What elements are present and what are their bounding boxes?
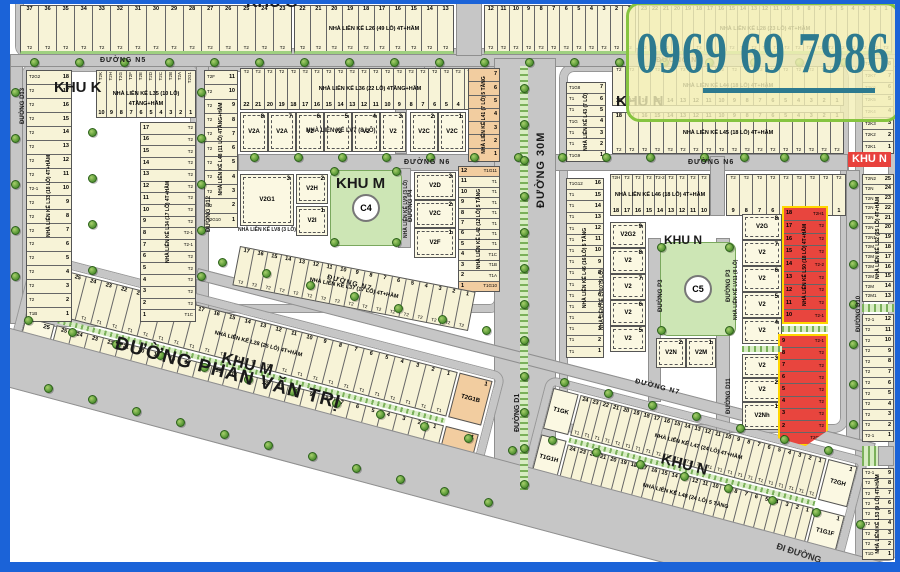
plot-number: 6 [232, 146, 235, 152]
plot-number: 16 [63, 103, 69, 109]
plot-cell: 10T2 [698, 175, 709, 215]
tree-icon [392, 167, 401, 176]
plot-code: T1 [204, 348, 210, 354]
plot-code: V2 [758, 328, 765, 334]
plot-cell: 5T2 [141, 262, 195, 274]
plot-code: T1 [798, 488, 804, 494]
plot-cell: 15T2 [322, 69, 334, 109]
plot-number: 14 [657, 209, 663, 215]
plot-number: 11 [290, 331, 297, 338]
plot-code: T2 [27, 46, 32, 51]
tree-icon [30, 58, 39, 67]
tree-icon [438, 315, 447, 324]
plot-number: 19 [347, 7, 353, 13]
plot-cell: 8T2 [534, 6, 547, 51]
plot-number: 13 [668, 209, 674, 215]
plot-cell: T2M113 [863, 291, 893, 301]
plot-number: 17 [786, 224, 792, 230]
plot-number: 7 [552, 7, 555, 13]
plot-code: T1 [569, 238, 574, 243]
tree-icon [849, 380, 858, 389]
plot-number: 12 [488, 7, 494, 13]
plot-code: V2H [306, 186, 318, 192]
plot-number: 8 [369, 273, 373, 279]
plot-number: 1 [449, 230, 452, 236]
plot-code: T2M [865, 255, 874, 260]
plot-number: 9 [143, 219, 146, 225]
plot-code: T2 [385, 70, 390, 75]
plot-number: 16 [786, 237, 792, 243]
plot-number: 22 [885, 206, 891, 212]
plot-code: T1C [488, 253, 497, 258]
plot-cell: T29 [863, 346, 893, 357]
tree-icon [440, 487, 449, 496]
strip-title: NHÀ LIÊN KẾ L41 (7 LÔ) 5 TẦNG [481, 76, 487, 154]
plot-code: T1 [604, 438, 610, 444]
plot-cell: 18T2 [358, 6, 374, 51]
tree-icon [394, 304, 403, 313]
plot-number: 1 [818, 459, 822, 465]
plot-code: T2 [29, 298, 34, 303]
villa-plot: 3V2D [414, 172, 456, 200]
plot-cell: 6T2 [559, 6, 572, 51]
plot-code: T2N [865, 197, 874, 202]
plot-cell: 18T2 [613, 113, 625, 153]
plot-number: 1 [232, 218, 235, 224]
road-30m-median [520, 66, 528, 490]
plot-code: T2 [616, 68, 621, 73]
plot-cell: T210 [863, 335, 893, 346]
plot-number: 12 [885, 317, 891, 323]
street-label-p3: ĐƯỜNG P3 [658, 280, 664, 312]
plot-number: 19 [279, 103, 285, 109]
plot-number: 2 [321, 176, 324, 182]
tree-icon [849, 220, 858, 229]
plot-code: T2 [616, 148, 621, 153]
plot-number: 33 [99, 7, 105, 13]
plot-number: 4 [373, 114, 376, 120]
plot-cell: T114 [567, 200, 603, 211]
plot-number: 1 [805, 508, 809, 514]
plot-cell: 9T2 [522, 6, 535, 51]
plot-cell: T27 [863, 367, 893, 378]
plot-code: T2 [819, 250, 824, 255]
plot-number: 13 [786, 275, 792, 281]
tree-icon [780, 153, 789, 162]
plot-number: 18 [786, 211, 792, 217]
plot-code: T2 [819, 351, 824, 356]
plot-cell: 7T2 [780, 359, 826, 371]
plot-code: T1 [281, 368, 287, 374]
plot-number: 5 [494, 99, 497, 105]
plot-number: 9 [736, 438, 740, 444]
plot-code: V2 [389, 129, 396, 135]
plot-cell: 9T2 [393, 69, 405, 109]
plot-code: T2 [29, 242, 34, 247]
plot-number: 3 [888, 121, 891, 127]
plot-code: T2 [320, 296, 326, 301]
tree-icon [548, 436, 557, 445]
plot-code: T2 [501, 46, 506, 51]
plot-code: T1 [492, 180, 497, 185]
plot-code: T2 [865, 339, 870, 344]
plot-number: 17 [302, 103, 308, 109]
plot-number: 15 [143, 149, 149, 155]
tree-icon [390, 58, 399, 67]
plot-cell: 1T2 [832, 175, 845, 215]
plot-code: T2-2 [815, 263, 824, 268]
plot-code: T2M [865, 265, 874, 270]
villa-plot: 6V2 [610, 300, 646, 326]
plot-number: 4 [386, 413, 390, 419]
plot-code: T2G1B [460, 394, 480, 405]
plot-code: T2 [363, 46, 368, 51]
villa-plot: 2V2 [742, 378, 782, 402]
plot-number: 17 [243, 249, 250, 256]
plot-number: 10 [98, 111, 104, 117]
plot-number: 8 [461, 211, 464, 217]
plot-number: 12 [786, 288, 792, 294]
strip-title-lv11: NHÀ LIÊN KẾ LV11 (8 LÔ) [734, 260, 739, 320]
plot-code: T2G1 [188, 72, 193, 83]
plot-cell: 11T1 [459, 176, 499, 186]
plot-cell: 5T2 [440, 69, 452, 109]
plot-number: 6 [754, 495, 758, 501]
plot-code: T2 [411, 46, 416, 51]
plot-cell: T13 [567, 323, 603, 334]
tree-icon [220, 430, 229, 439]
phone-underline [703, 88, 875, 93]
plot-number: 2 [679, 340, 682, 346]
plot-number: 12 [691, 479, 698, 486]
plot-code: T2 [629, 148, 634, 153]
plot-code: T2 [350, 70, 355, 75]
plot-number: 7 [353, 348, 357, 354]
tree-icon [592, 448, 601, 457]
plot-cell: 1T1C [141, 309, 195, 321]
plot-number: 4 [66, 270, 69, 276]
plot-number: 8 [261, 114, 264, 120]
plot-code: T2-1 [865, 318, 874, 323]
plot-number: 5 [410, 281, 414, 287]
plot-cell: T2F11 [205, 71, 237, 84]
plot-code: T1 [492, 201, 497, 206]
plot-code: T1 [492, 242, 497, 247]
plot-cell: 22T2 [241, 69, 252, 109]
street-label-30m: ĐƯỜNG 30M [536, 132, 547, 208]
plot-number: 4 [143, 278, 146, 284]
plot-cell: 2T2A [175, 71, 185, 117]
plot-cell: T24 [863, 399, 893, 410]
strip-title: NHÀ LIÊN KẾ L48 (11 LÔ) 4TẦNG+HẦM [218, 103, 224, 196]
plot-number: 14 [671, 473, 678, 480]
villa-plot: 5V2 [610, 326, 646, 352]
plot-cell: T12 [567, 335, 603, 346]
plot-code: T2 [757, 148, 762, 153]
plot-number: 5 [888, 391, 891, 397]
plot-code: T2 [770, 176, 775, 181]
plot-code: T2M [865, 275, 874, 280]
plot-number: 7 [639, 276, 642, 282]
plot-code: V2F [429, 240, 440, 246]
plot-code: T1 [569, 204, 574, 209]
plot-cell: 2T2 [610, 6, 623, 51]
plot-number: 5 [143, 266, 146, 272]
plot-number: 9 [398, 103, 401, 109]
plot-code: T1 [312, 376, 318, 382]
plot-code: T2E [139, 72, 144, 80]
plot-number: 16 [663, 419, 670, 426]
plot-number: 9 [639, 224, 642, 230]
plot-code: T2 [99, 46, 104, 51]
plot-number: 4 [888, 521, 891, 527]
plot-code: T2 [29, 89, 34, 94]
plot-number: 10 [461, 190, 467, 196]
plot-cell: 6T2 [428, 69, 440, 109]
plot-code: T1 [569, 316, 574, 321]
plot-code: T1G9 [569, 154, 580, 159]
plot-code: T2 [865, 392, 870, 397]
plot-number: 5 [345, 114, 348, 120]
plot-number: 10 [724, 435, 731, 442]
frame-bottom [0, 562, 900, 572]
plot-cell: 21T2 [310, 6, 326, 51]
tree-icon [820, 153, 829, 162]
plot-code: T2 [314, 70, 319, 75]
plot-number: 18 [885, 245, 891, 251]
tree-icon [520, 372, 529, 381]
plot-code: T2A [178, 72, 183, 80]
plot-cell: 28T2 [183, 6, 201, 51]
plot-number: 16 [635, 209, 641, 215]
plot-number: 11 [326, 265, 333, 272]
street-label-d10: ĐƯỜNG D10 [856, 296, 862, 332]
plot-code: T2 [655, 148, 660, 153]
plot-code: T2 [251, 283, 257, 288]
plot-code: T1 [594, 435, 600, 441]
tree-icon [482, 326, 491, 335]
plot-code: T2 [744, 176, 749, 181]
plot-number: 11 [690, 209, 696, 215]
plot-code: V2C [429, 211, 441, 217]
plot-number: 4 [775, 320, 778, 326]
plot-number: 15 [673, 421, 680, 428]
plot-cell: 33T2 [92, 6, 110, 51]
plot-cell: T28 [863, 356, 893, 367]
plot-cell: 13T2 [346, 69, 358, 109]
plot-code: T2 [403, 312, 409, 317]
strip-l34: 17T216T215T214T213T212T211T210T29T28T2-1… [140, 122, 196, 322]
plot-number: 4 [787, 451, 791, 457]
street-label-n6b: ĐƯỜNG N6 [688, 159, 734, 166]
tree-icon [11, 134, 20, 143]
plot-code: T1 [569, 338, 574, 343]
plot-number: 9 [527, 7, 530, 13]
tree-icon [11, 180, 20, 189]
tree-icon [484, 498, 493, 507]
plot-code: T2K1 [865, 145, 876, 150]
plot-number: 2 [807, 456, 811, 462]
plot-code: T2 [642, 148, 647, 153]
plot-number: 3 [232, 189, 235, 195]
plot-code: T2 [797, 176, 802, 181]
plot-number: 1 [837, 209, 840, 215]
tree-icon [255, 58, 264, 67]
tree-icon [520, 444, 529, 453]
plot-number: 22 [299, 7, 305, 13]
plot-number: 14 [595, 204, 601, 210]
plot-code: T2 [865, 532, 870, 537]
plot-code: T1 [96, 320, 102, 326]
plot-code: T2 [208, 46, 213, 51]
plot-cell: 11T2 [497, 6, 510, 51]
plot-number: 10 [229, 89, 235, 95]
plot-cell: T23 [27, 279, 71, 293]
tree-icon [615, 58, 624, 67]
plot-number: 4 [782, 399, 785, 405]
plot-number: 10 [513, 7, 519, 13]
plot-number: 12 [63, 158, 69, 164]
plot-code: T2 [865, 402, 870, 407]
plot-number: 1 [66, 312, 69, 318]
plot-number: 1 [848, 467, 853, 474]
villa-plot: 3V2 [742, 354, 782, 378]
plot-code: T2 [81, 46, 86, 51]
plot-cell: 17T2 [374, 6, 390, 51]
plot-code: T2N [865, 206, 874, 211]
tree-icon [768, 496, 777, 505]
strip-l26-b: 22T221T220T219T218T217T216T215T214T213T2… [294, 5, 454, 54]
strip-title-lv7: NHÀ LIÊN KẾ LV7 (8 LÔ) [306, 128, 376, 134]
plot-code: T2 [307, 293, 313, 298]
plot-number: 14 [284, 257, 291, 264]
plot-cell: T210 [205, 84, 237, 98]
plot-code: T2 [29, 173, 34, 178]
plot-code: T2N [865, 216, 874, 221]
plot-number: 1 [836, 516, 841, 523]
plot-code: T1 [492, 222, 497, 227]
plot-cell: T25 [27, 251, 71, 265]
plot-code: T2 [189, 46, 194, 51]
plot-code: T2 [117, 46, 122, 51]
plot-cell: T2N225 [863, 175, 893, 184]
plot-code: T1 [717, 467, 723, 473]
plot-number: 6 [600, 97, 603, 103]
plot-number: 1 [888, 433, 891, 439]
plot-number: 6 [639, 302, 642, 308]
plot-number: 14 [427, 7, 433, 13]
street-label-d11: ĐƯỜNG D11 [726, 378, 732, 414]
plot-number: 4 [424, 284, 428, 290]
plot-code: T2 [783, 176, 788, 181]
plot-code: T2 [427, 46, 432, 51]
plot-code: T1 [569, 271, 574, 276]
strip-title: NHÀ LIÊN KẾ L42 (12 LÔ) 5 TẦNG [476, 189, 482, 269]
plot-number: 9 [322, 340, 326, 346]
plot-cell: 37T2 [21, 6, 38, 51]
plot-code: T2-2 [655, 176, 664, 181]
tree-icon [849, 260, 858, 269]
plot-number: 17 [197, 307, 204, 314]
tree-icon [300, 58, 309, 67]
plot-code: T2 [256, 70, 261, 75]
roundabout-label: C4 [360, 203, 372, 213]
plot-number: 1 [888, 552, 891, 558]
plot-number: 19 [620, 460, 627, 467]
villa-plot: 8V2 [610, 248, 646, 274]
plot-code: T2 [338, 70, 343, 75]
plot-cell: 4T2 [585, 6, 598, 51]
plot-number: 24 [885, 186, 891, 192]
plot-number: 20 [885, 225, 891, 231]
plot-number: 16 [595, 181, 601, 187]
plot-cell: 8T2 [739, 175, 752, 215]
plot-code: T2M [865, 245, 874, 250]
plot-code: T2K2 [865, 133, 876, 138]
plot-number: 10 [63, 186, 69, 192]
plot-code: T1 [645, 449, 651, 455]
plot-cell: 30T2 [146, 6, 164, 51]
plot-cell: T1G91 [567, 150, 605, 161]
plot-number: 25 [60, 328, 67, 335]
plot-code: T2 [188, 302, 193, 307]
plot-code: T2 [188, 138, 193, 143]
plot-number: 10 [306, 335, 313, 342]
villa-plot: 1V2Nh [742, 402, 782, 430]
plot-number: 14 [885, 284, 891, 290]
plot-number: 2 [775, 380, 778, 386]
plot-number: 2 [782, 424, 785, 430]
plot-code: T2 [693, 148, 698, 153]
street-label-d1: ĐƯỜNG D1 [514, 394, 521, 432]
plot-cell: 14T2 [421, 6, 437, 51]
strip-l41: 7654321NHÀ LIÊN KẾ L41 (7 LÔ) 5 TẦNG [468, 68, 500, 162]
plot-code: V2A [276, 129, 288, 135]
strip-l35: 10T2K9T2H8T2G7T2F6T2E5T2D4T2C3T2B2T2A1T2… [96, 70, 196, 118]
plot-code: T2 [819, 237, 824, 242]
tree-icon [197, 88, 206, 97]
plot-code: T1G12 [569, 182, 583, 187]
plot-cell: 21T2 [252, 69, 264, 109]
plot-cell: 14T2-2 [654, 175, 665, 215]
plot-number: 11 [461, 179, 467, 185]
plot-number: 13 [298, 260, 305, 267]
plot-cell: 16T2 [141, 134, 195, 146]
plot-code: T2GH [829, 478, 846, 488]
tree-icon [856, 520, 865, 529]
plot-code: T2 [291, 70, 296, 75]
plot-code: T1 [173, 340, 179, 346]
plot-number: 3 [415, 363, 419, 369]
plot-number: 12 [679, 209, 685, 215]
plot-code: T2G [119, 72, 124, 81]
plot-code: V2Nh [754, 413, 769, 419]
plot-code: T1 [788, 486, 794, 492]
plot-number: 7 [600, 85, 603, 91]
plot-number: 18 [290, 103, 296, 109]
tree-icon [570, 58, 579, 67]
plot-number: 5 [461, 242, 464, 248]
plot-code: V2 [624, 336, 631, 342]
plot-number: 9 [461, 200, 464, 206]
plot-number: 7 [130, 111, 133, 117]
tree-icon [197, 180, 206, 189]
plot-number: 2 [452, 289, 456, 295]
villa-plot: 2V2C [410, 112, 438, 152]
plot-cell: 29T2 [165, 6, 183, 51]
plot-cell: 20T2 [326, 6, 342, 51]
plot-code: V2 [758, 363, 765, 369]
